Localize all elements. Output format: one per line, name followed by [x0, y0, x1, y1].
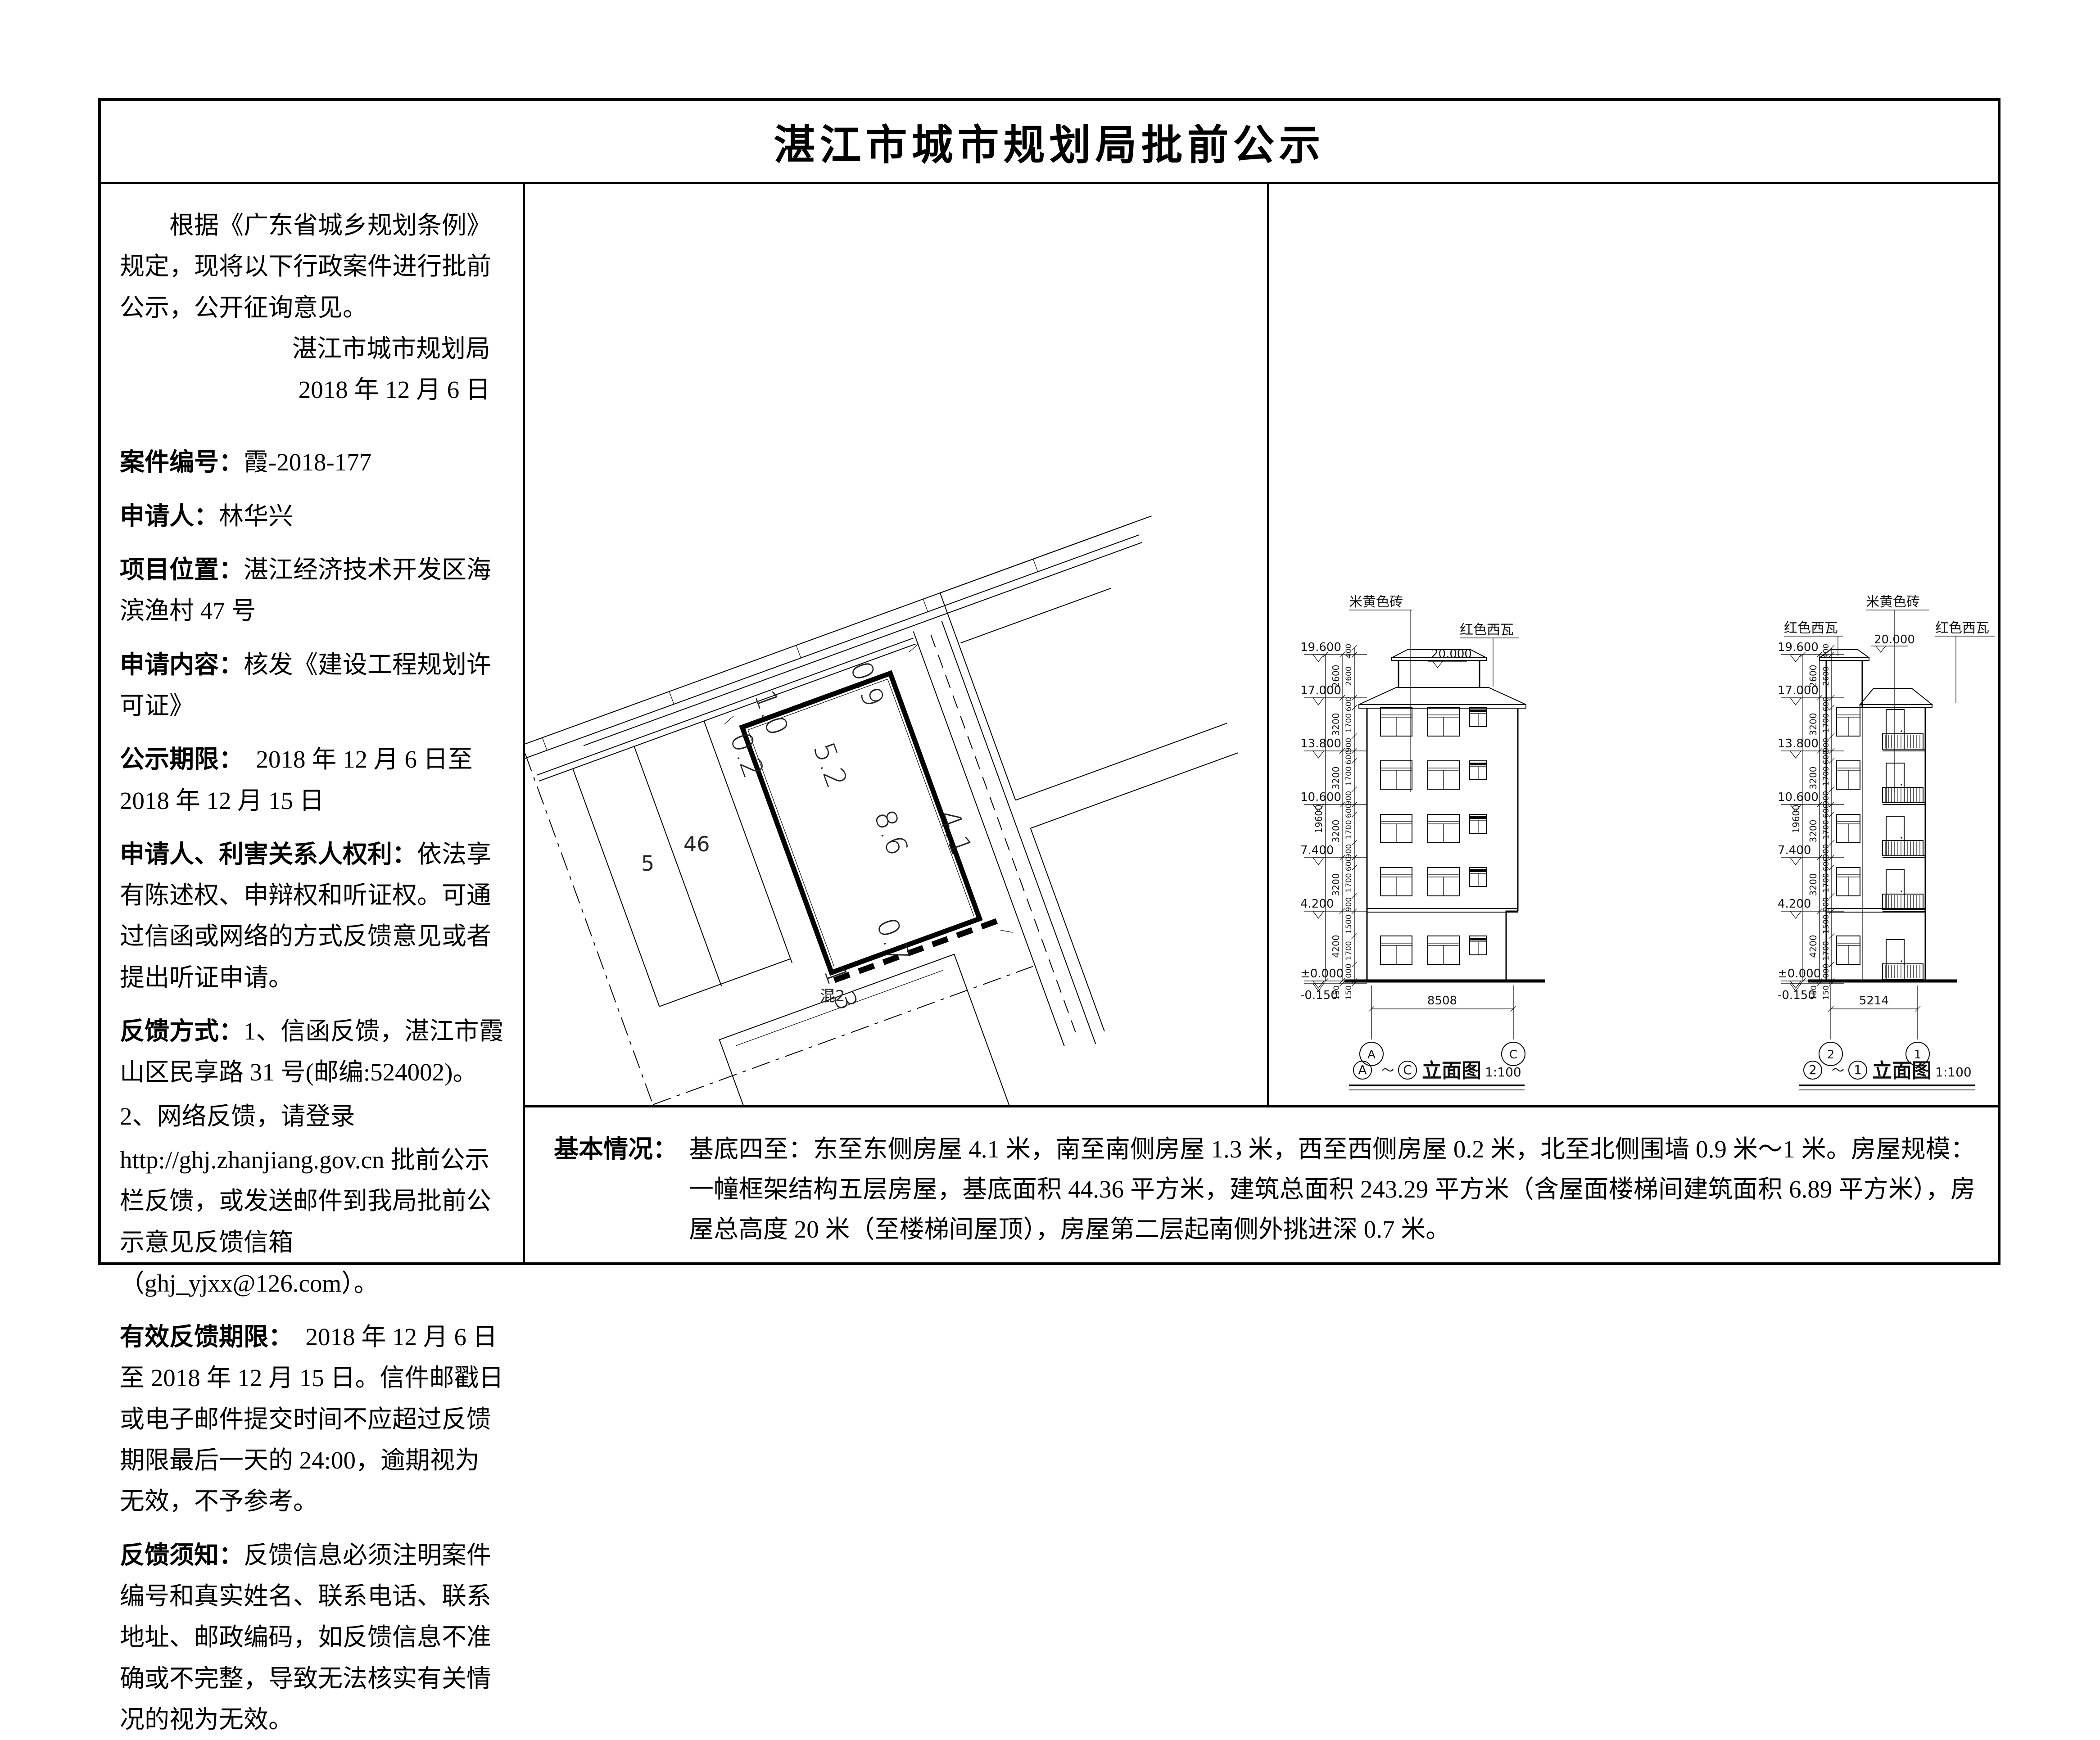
dim-floor: 150	[1332, 985, 1341, 1000]
parcel-46-label: 46	[683, 832, 710, 856]
caption-text: 立面图	[1872, 1059, 1932, 1082]
page-title: 湛江市城市规划局批前公示	[101, 101, 1998, 184]
axis-bubble-2: 2	[1827, 1048, 1835, 1062]
dim-sub: 150	[1822, 985, 1831, 1000]
dim-floor: 150	[1810, 985, 1819, 1000]
dim-sub: 600	[1344, 804, 1353, 818]
top-level-label: 20.000	[1431, 647, 1472, 661]
dim-floor: 3200	[1808, 873, 1819, 896]
main-roof	[1359, 687, 1526, 705]
notice-intro: 根据《广东省城乡规划条例》规定，现将以下行政案件进行批前公示，公开征询意见。	[120, 205, 504, 328]
field-label: 反馈须知：	[120, 1541, 244, 1569]
caption-axis-right: 1	[1854, 1062, 1862, 1077]
field-label: 反馈方式：	[120, 1017, 244, 1045]
drawings-row: 1.0 0.9 0.2 5.2 8.6 4.1 1.3 0.7 5 46 混2	[525, 184, 1998, 1105]
field-feedback-notes: 反馈须知：反馈信息必须注明案件编号和真实姓名、联系电话、联系地址、邮政编码，如反…	[120, 1535, 504, 1740]
level-10600: 10.600	[1778, 791, 1819, 804]
width-dim: 5214	[1859, 994, 1889, 1008]
dim-sub: 600	[1344, 697, 1353, 711]
notice-text-panel: 根据《广东省城乡规划条例》规定，现将以下行政案件进行批前公示，公开征询意见。 湛…	[101, 184, 525, 1265]
field-label: 申请人、利害关系人权利：	[120, 841, 417, 868]
dim-sub: 400	[1344, 644, 1353, 658]
basic-info-text: 基底四至：东至东侧房屋 4.1 米，南至南侧房屋 1.3 米，西至西侧房屋 0.…	[689, 1129, 1975, 1256]
elevations-panel: 19.600 17.000 13.800 10.600 7.400 4.200 …	[1269, 184, 1998, 1105]
basic-info-label: 基本情况：	[554, 1129, 689, 1256]
dim-plot-width: 5.2	[806, 738, 853, 792]
field-label: 申请内容：	[120, 651, 244, 678]
elevation-a: 19.600 17.000 13.800 10.600 7.400 4.200 …	[1300, 594, 1545, 1090]
field-value: 反馈信息必须注明案件编号和真实姓名、联系电话、联系地址、邮政编码，如反馈信息不准…	[120, 1541, 491, 1733]
notice-authority: 湛江市城市规划局	[120, 328, 504, 369]
field-value: 霞-2018-177	[244, 448, 371, 476]
dim-sub: 600	[1344, 857, 1353, 871]
caption-tilde: ～	[1381, 1063, 1394, 1078]
field-label: 案件编号：	[120, 448, 244, 476]
field-applicant: 申请人：林华兴	[120, 496, 504, 537]
dim-total: 19600	[1791, 804, 1801, 833]
level-19600: 19.600	[1300, 641, 1341, 654]
level-4200: 4.200	[1778, 897, 1811, 911]
dim-sub: 1700	[1344, 941, 1353, 960]
field-label: 公示期限：	[120, 746, 231, 773]
dim-floor: 4200	[1331, 935, 1341, 958]
top-level-label: 20.000	[1874, 633, 1915, 646]
dim-sub: 1700	[1344, 766, 1353, 786]
elevation-b: 19.600 17.000 13.800 10.600 7.400 4.200 …	[1778, 594, 1995, 1090]
notice-date: 2018 年 12 月 6 日	[120, 369, 504, 410]
elevation-drawings: 19.600 17.000 13.800 10.600 7.400 4.200 …	[1269, 184, 2001, 1105]
field-feedback-method: 反馈方式：1、信函反馈，湛江市霞山区民享路 31 号(邮编:524002)。	[120, 1011, 504, 1093]
dim-sub: 2600	[1344, 666, 1353, 686]
wall-material-label: 米黄色砖	[1349, 594, 1403, 610]
level-19600: 19.600	[1778, 641, 1819, 654]
south-building-label: 混2	[820, 987, 845, 1005]
field-value: 2、网络反馈，请登录	[120, 1103, 355, 1130]
dim-sub: 1500	[1344, 914, 1353, 934]
level-13800: 13.800	[1300, 737, 1341, 750]
caption-axis-right: C	[1403, 1062, 1412, 1077]
dim-floor: 3200	[1808, 713, 1819, 736]
dim-south-overhang: 0.7	[869, 913, 916, 968]
roof-material-label-right: 红色西瓦	[1935, 620, 1989, 636]
field-label: 申请人：	[120, 502, 219, 530]
level-10600: 10.600	[1300, 791, 1341, 804]
field-publicity-period: 公示期限： 2018 年 12 月 6 日至 2018 年 12 月 15 日	[120, 739, 504, 821]
field-case-number: 案件编号：霞-2018-177	[120, 442, 504, 483]
dim-sub: 150	[1344, 985, 1353, 1000]
level-0000: ±0.000	[1300, 967, 1344, 981]
level-7400: 7.400	[1778, 844, 1811, 857]
level-13800: 13.800	[1778, 737, 1819, 750]
width-dim: 8508	[1427, 994, 1457, 1008]
dim-total: 19600	[1313, 804, 1324, 833]
axis-bubble-a: A	[1367, 1048, 1376, 1062]
basic-info-box: 基本情况： 基底四至：东至东侧房屋 4.1 米，南至南侧房屋 1.3 米，西至西…	[525, 1105, 1998, 1265]
field-value: 林华兴	[219, 502, 293, 530]
field-label: 项目位置：	[120, 556, 244, 583]
content-area: 根据《广东省城乡规划条例》规定，现将以下行政案件进行批前公示，公开征询意见。 湛…	[101, 184, 1998, 1265]
field-feedback-url: http://ghj.zhanjiang.gov.cn 批前公示栏反馈，或发送邮…	[120, 1139, 504, 1304]
axis-bubble-c: C	[1509, 1048, 1517, 1062]
caption-axis-left: 2	[1809, 1062, 1817, 1077]
field-location: 项目位置：湛江经济技术开发区海滨渔村 47 号	[120, 549, 504, 632]
dim-sub: 1700	[1344, 713, 1353, 732]
dim-floor: 3200	[1331, 873, 1341, 896]
notice-board: 湛江市城市规划局批前公示 根据《广东省城乡规划条例》规定，现将以下行政案件进行批…	[98, 98, 2000, 1265]
level-4200: 4.200	[1300, 897, 1334, 911]
dim-plot-depth: 8.6	[867, 805, 914, 860]
subject-plot-south-dashed-edge	[834, 920, 999, 980]
dim-north-wall-2: 0.9	[843, 657, 890, 711]
dim-floor: 3200	[1808, 820, 1819, 843]
dim-floor: 2600	[1808, 665, 1819, 688]
field-valid-feedback-period: 有效反馈期限： 2018 年 12 月 6 日至 2018 年 12 月 15 …	[120, 1316, 504, 1522]
caption-axis-left: A	[1358, 1062, 1367, 1077]
caption-text: 立面图	[1422, 1059, 1481, 1082]
field-feedback-method-2: 2、网络反馈，请登录	[120, 1096, 504, 1137]
roof-material-label-left: 红色西瓦	[1784, 620, 1838, 636]
caption-scale: 1:100	[1485, 1065, 1521, 1080]
level-0000: ±0.000	[1778, 967, 1821, 981]
drawings-area: 1.0 0.9 0.2 5.2 8.6 4.1 1.3 0.7 5 46 混2	[525, 184, 1998, 1265]
notice-page: 湛江市城市规划局批前公示 根据《广东省城乡规划条例》规定，现将以下行政案件进行批…	[0, 0, 2100, 1485]
dim-floor: 3200	[1331, 820, 1341, 843]
wall-material-label: 米黄色砖	[1866, 594, 1920, 610]
field-label: 有效反馈期限：	[120, 1323, 281, 1351]
dim-sub: 900	[1344, 791, 1353, 805]
dim-floor: 3200	[1331, 767, 1341, 790]
field-application-content: 申请内容：核发《建设工程规划许可证》	[120, 644, 504, 727]
dim-floor: 4200	[1808, 935, 1819, 958]
dim-sub: 900	[1344, 897, 1353, 912]
dim-floor: 2600	[1331, 665, 1341, 688]
level-7400: 7.400	[1300, 844, 1334, 857]
roof-material-label: 红色西瓦	[1460, 622, 1514, 638]
site-plan-panel: 1.0 0.9 0.2 5.2 8.6 4.1 1.3 0.7 5 46 混2	[525, 184, 1269, 1105]
parcel-5-label: 5	[641, 851, 654, 876]
site-plan-drawing: 1.0 0.9 0.2 5.2 8.6 4.1 1.3 0.7 5 46 混2	[525, 184, 1267, 1105]
dim-sub: 1700	[1344, 873, 1353, 892]
dim-sub: 900	[1344, 844, 1353, 859]
elevation-a-caption: A ～ C 立面图 1:100	[1349, 1059, 1525, 1090]
dim-floor: 3200	[1808, 767, 1819, 790]
field-rights: 申请人、利害关系人权利：依法享有陈述权、申辩权和听证权。可通过信函或网络的方式反…	[120, 834, 504, 998]
dim-floor: 3200	[1331, 713, 1341, 736]
caption-scale: 1:100	[1935, 1065, 1972, 1080]
dim-sub: 1700	[1344, 820, 1353, 839]
balcony-roof	[1860, 688, 1932, 705]
dim-east-gap: 4.1	[931, 805, 978, 860]
field-value: 2018 年 12 月 6 日至 2018 年 12 月 15 日。信件邮戳日或…	[120, 1323, 504, 1515]
dim-sub: 600	[1344, 750, 1353, 764]
field-value: http://ghj.zhanjiang.gov.cn 批前公示栏反馈，或发送邮…	[120, 1146, 491, 1297]
caption-tilde: ～	[1832, 1063, 1844, 1078]
